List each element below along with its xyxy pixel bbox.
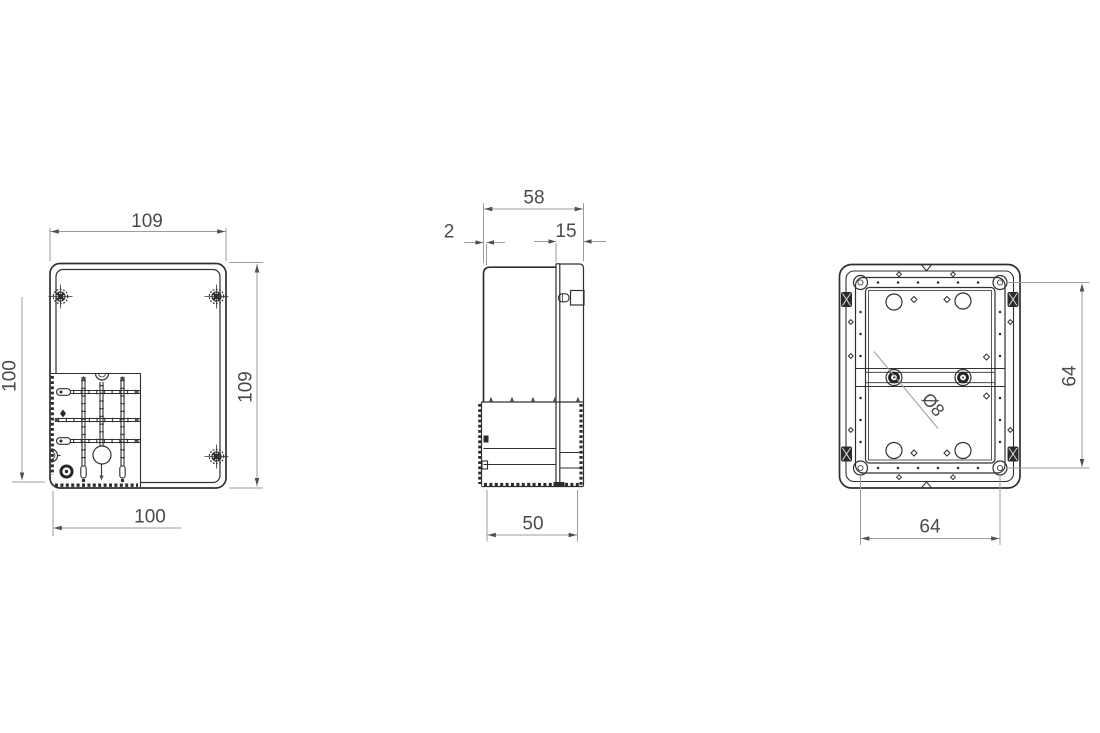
- front-knockout-area: [51, 374, 141, 488]
- back-rail-boss-right: [955, 370, 971, 386]
- back-rail-boss-left: [886, 370, 902, 386]
- front-width-bottom-label: 100: [134, 507, 166, 528]
- back-mount-spacing-vertical-label: 64: [1060, 365, 1081, 387]
- drawing-canvas: 109 109 100 100: [0, 0, 1100, 733]
- front-height-left-label: 100: [0, 360, 21, 392]
- drawing-background: [0, 0, 1100, 733]
- side-depth-total-label: 58: [523, 188, 544, 209]
- technical-drawing: 109 109 100 100: [0, 0, 1100, 733]
- back-mount-spacing-horizontal-label: 64: [919, 517, 941, 538]
- side-joint-foot: [554, 482, 565, 487]
- front-height-right-label: 109: [236, 371, 257, 403]
- front-width-top-label: 109: [131, 211, 163, 232]
- side-edge-tab: [484, 436, 489, 443]
- side-lid-depth-label: 15: [555, 221, 576, 242]
- side-body-depth-label: 50: [522, 514, 543, 535]
- side-wall-thickness-label: 2: [444, 222, 455, 243]
